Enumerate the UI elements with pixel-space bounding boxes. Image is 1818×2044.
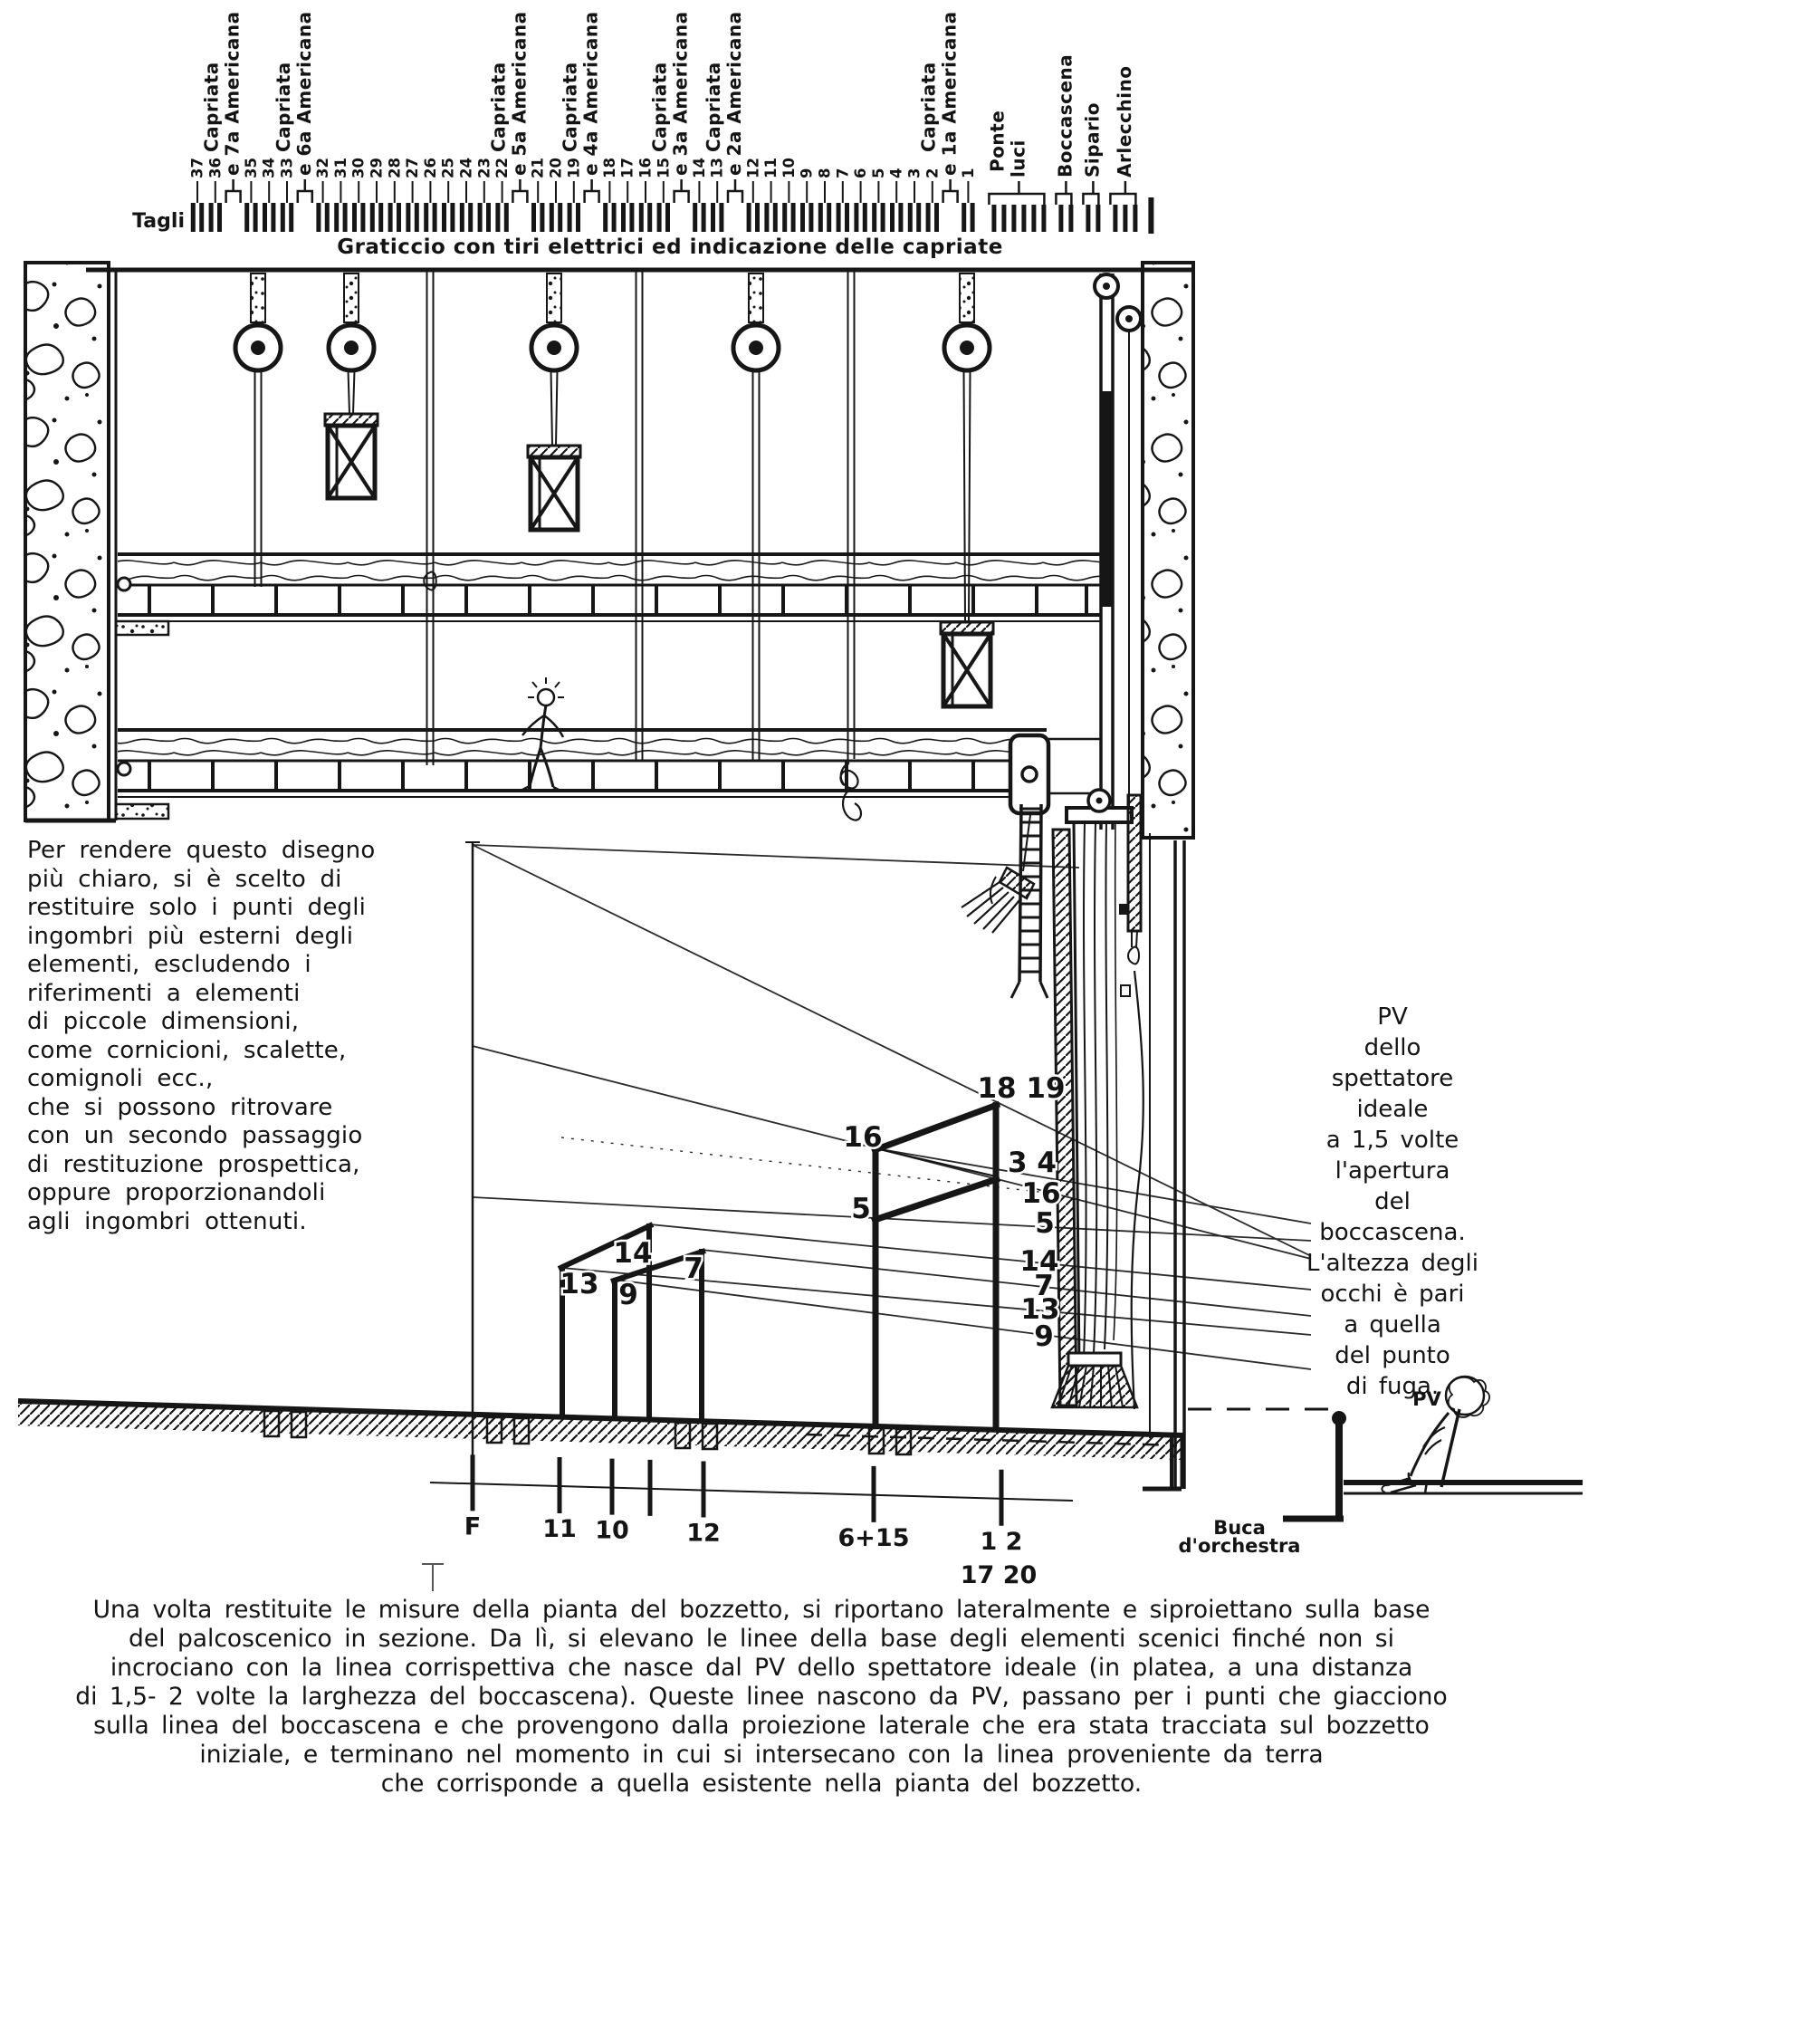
- ruler-label: Boccascena: [1054, 54, 1076, 178]
- graticcio-ruler: 3736Capriatae 7a Americana353433Capriata…: [189, 11, 1154, 234]
- ruler-tick-number: 28: [386, 158, 403, 178]
- note-line: iniziale, e terminano nel momento in cui…: [24, 1741, 1499, 1770]
- note-line: di fuga.: [1239, 1371, 1546, 1402]
- scale-tick-label: 1 2: [981, 1528, 1023, 1556]
- restitution-point-number: 16: [1021, 1177, 1060, 1210]
- scale-tick-label: 6+15: [838, 1524, 910, 1552]
- ruler-tick-number: 7: [834, 168, 851, 178]
- ruler-label: Capriatae 1a Americana: [918, 11, 961, 176]
- ruler-label: Capriatae 5a Americana: [487, 11, 530, 176]
- curtain-assembly: [1052, 790, 1184, 1489]
- note-line: L'altezza degli: [1239, 1248, 1546, 1279]
- note-line: come cornicioni, scalette,: [27, 1037, 426, 1066]
- note-line: che corrisponde a quella esistente nella…: [24, 1770, 1499, 1799]
- corbel-upper: [116, 621, 168, 635]
- restitution-point-number: 13: [560, 1268, 598, 1300]
- ruler-tick-number: 12: [744, 158, 761, 178]
- note-line: a quella: [1239, 1310, 1546, 1340]
- ruler-tick-number: 16: [637, 158, 655, 178]
- sipario-batten: [1128, 795, 1141, 931]
- note-line: che si possono ritrovare: [27, 1094, 426, 1123]
- ruler-tick-number: 34: [261, 158, 278, 178]
- ruler-tick-number: 26: [422, 158, 439, 178]
- ruler-tick-number: 11: [762, 158, 780, 178]
- ruler-tick-number: 32: [314, 158, 331, 178]
- proscenium-channel: [1095, 273, 1141, 830]
- counterweight-box: [325, 414, 378, 498]
- note-line: di 1,5- 2 volte la larghezza del boccasc…: [24, 1683, 1499, 1712]
- ruler-tick-number: 10: [780, 158, 798, 178]
- note-line: restituire solo i punti degli: [27, 894, 426, 923]
- restitution-point-number: 5: [851, 1193, 871, 1225]
- page: 3736Capriatae 7a Americana353433Capriata…: [0, 0, 1818, 2044]
- pit-rail-knob: [1332, 1411, 1346, 1425]
- restitution-point-number: 7: [684, 1252, 703, 1285]
- restitution-point-number: 3 4: [1008, 1147, 1057, 1179]
- ruler-label: Capriatae 3a Americana: [649, 11, 692, 176]
- note-line: occhi è pari: [1239, 1279, 1546, 1310]
- ruler-tick-number: 8: [817, 168, 834, 178]
- note-line: spettatore: [1239, 1063, 1546, 1094]
- scale-ticks: F1110126+151 217 20: [464, 1454, 1038, 1589]
- rope-knot: [1128, 947, 1139, 964]
- ruler-tick-number: 20: [548, 158, 565, 178]
- note-line: più chiaro, si è scelto di: [27, 866, 426, 895]
- note-line: riferimenti a elementi: [27, 980, 426, 1009]
- ruler-label: Ponteluci: [986, 110, 1029, 178]
- ruler-tick-number: 37: [189, 158, 206, 178]
- chair-back: [1441, 1409, 1459, 1487]
- caption-paragraph: Una volta restituite le misure della pia…: [24, 1596, 1499, 1799]
- left-annotation: Per rendere questo disegnopiù chiaro, si…: [27, 837, 426, 1236]
- note-line: Per rendere questo disegno: [27, 837, 426, 866]
- restitution-point-number: 5: [1035, 1207, 1055, 1240]
- ruler-label: Sipario: [1081, 102, 1103, 178]
- rope-sleeve: [251, 273, 265, 322]
- measure-line: [430, 1483, 1073, 1501]
- note-line: di restituzione prospettica,: [27, 1151, 426, 1180]
- bridge-lower: [118, 730, 1101, 813]
- counterweight-box: [528, 446, 580, 530]
- restitution-point-number: 9: [1034, 1320, 1054, 1353]
- ruler-tick-number: 21: [530, 158, 547, 178]
- note-line: comignoli ecc.,: [27, 1065, 426, 1094]
- ruler-tick-number: 35: [243, 158, 260, 178]
- buca-orchestra-label-line2: d'orchestra: [1179, 1535, 1301, 1557]
- ruler-tick-number: 5: [870, 168, 887, 178]
- ruler-label: Capriatae 7a Americana: [201, 11, 244, 176]
- ladder: [1011, 804, 1048, 998]
- ruler-label: Capriatae 2a Americana: [703, 11, 745, 176]
- curtain-fold: [1114, 822, 1117, 1340]
- restitution-point-number: 14: [613, 1237, 652, 1270]
- counterweight-box: [941, 622, 993, 706]
- curtain-fold: [1105, 822, 1107, 1349]
- ruler-label: Capriatae 6a Americana: [273, 11, 315, 176]
- ruler-tick-number: 3: [906, 168, 923, 178]
- ruler-tick-number: 1: [960, 168, 977, 178]
- ruler-label: Capriatae 4a Americana: [560, 11, 602, 176]
- scenic-element-right: [872, 1102, 1000, 1432]
- note-line: incrociano con la linea corrispettiva ch…: [24, 1654, 1499, 1683]
- scale-tick-label: F: [464, 1512, 481, 1540]
- scale-tick-label: 17 20: [961, 1561, 1038, 1589]
- note-line: a 1,5 volte: [1239, 1125, 1546, 1156]
- note-line: con un secondo passaggio: [27, 1122, 426, 1151]
- curtain-fold: [1094, 822, 1096, 1354]
- note-line: del punto: [1239, 1340, 1546, 1371]
- note-line: di piccole dimensioni,: [27, 1008, 426, 1037]
- note-line: boccascena.: [1239, 1217, 1546, 1248]
- note-line: ideale: [1239, 1094, 1546, 1125]
- ruler-tick-number: 25: [440, 158, 457, 178]
- note-line: l'apertura: [1239, 1156, 1546, 1186]
- ruler-label: Arlecchino: [1114, 65, 1135, 178]
- restitution-point-number: 9: [618, 1279, 638, 1311]
- graticcio-caption: Graticcio con tiri elettrici ed indicazi…: [337, 235, 1003, 259]
- pv-annotation: PVdellospettatoreidealea 1,5 voltel'aper…: [1239, 1002, 1546, 1402]
- ruler-tick-number: 24: [458, 158, 475, 178]
- ruler-tick-number: 30: [350, 158, 368, 178]
- note-line: oppure proporzionandoli: [27, 1179, 426, 1208]
- ruler-tick-number: 27: [404, 158, 421, 178]
- note-line: elementi, escludendo i: [27, 951, 426, 980]
- scale-tick-label: 10: [595, 1517, 629, 1545]
- note-line: dello: [1239, 1032, 1546, 1063]
- ruler-tick-number: 29: [368, 158, 386, 178]
- scale-tick-label: 11: [542, 1515, 577, 1543]
- ruler-tick-number: 9: [799, 168, 816, 178]
- tassel: [962, 815, 1034, 933]
- note-line: agli ingombri ottenuti.: [27, 1208, 426, 1237]
- restitution-numbers: 18 19163 41655147139141379: [560, 1072, 1065, 1353]
- ruler-tick-number: 4: [888, 168, 905, 178]
- note-line: sulla linea del boccascena e che proveng…: [24, 1712, 1499, 1741]
- note-line: del: [1239, 1186, 1546, 1217]
- note-line: PV: [1239, 1002, 1546, 1032]
- note-line: del palcoscenico in sezione. Da lì, si e…: [24, 1625, 1499, 1654]
- right-wall: [1143, 263, 1193, 838]
- scale-tick-label: 12: [686, 1520, 721, 1548]
- note-line: ingombri più esterni degli: [27, 923, 426, 952]
- vanishing-vertical-f: [465, 842, 480, 1492]
- ruler-tick-number: 6: [852, 168, 869, 178]
- restitution-point-number: 18 19: [977, 1072, 1065, 1105]
- ruler-tick-number: 17: [619, 158, 636, 178]
- ruler-tick-number: 31: [332, 158, 349, 178]
- restitution-point-number: 16: [843, 1121, 882, 1154]
- pivot-bolt: [118, 763, 130, 775]
- ruler-tick-number: 14: [691, 158, 708, 178]
- tagli-label: Tagli: [132, 210, 185, 233]
- curtain-fold: [1084, 822, 1086, 1358]
- corbel-lower: [116, 804, 168, 819]
- bridge-upper: [118, 554, 1101, 621]
- ruler-tick-number: 23: [475, 158, 493, 178]
- orchestra-pit: [1143, 1409, 1583, 1520]
- note-line: Una volta restituite le misure della pia…: [24, 1596, 1499, 1625]
- pivot-bolt: [118, 578, 130, 590]
- ruler-tick-number: 18: [601, 158, 618, 178]
